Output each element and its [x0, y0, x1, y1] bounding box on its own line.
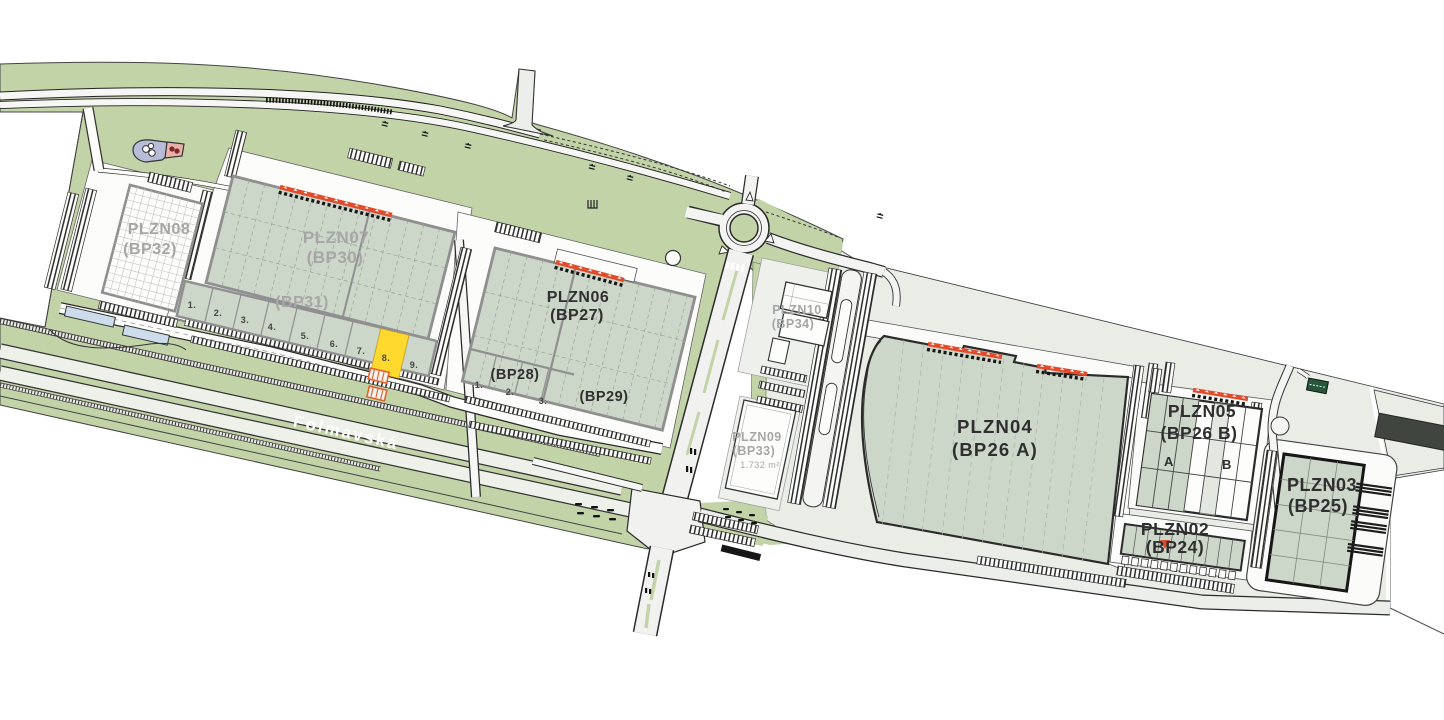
- svg-text:(BP24): (BP24): [1146, 537, 1204, 557]
- svg-text:PLZN05: PLZN05: [1168, 401, 1236, 421]
- svg-text:PLZN03: PLZN03: [1287, 475, 1357, 495]
- svg-text:A: A: [1164, 454, 1174, 469]
- svg-text:3.: 3.: [539, 396, 548, 406]
- svg-text:(BP29): (BP29): [580, 389, 629, 405]
- svg-text:PLZN06: PLZN06: [547, 289, 610, 306]
- svg-text:PLZN02: PLZN02: [1141, 519, 1209, 539]
- svg-text:PLZN07: PLZN07: [303, 228, 369, 247]
- svg-text:6.: 6.: [330, 339, 339, 349]
- svg-text:9.: 9.: [410, 360, 419, 370]
- svg-text:1.: 1.: [188, 300, 197, 310]
- svg-text:B: B: [1222, 457, 1232, 472]
- svg-text:(BP34): (BP34): [772, 317, 815, 331]
- svg-text:PLZN04: PLZN04: [957, 416, 1033, 437]
- svg-text:1.: 1.: [475, 380, 484, 390]
- svg-text:4.: 4.: [268, 322, 277, 332]
- svg-text:1.732 m²: 1.732 m²: [740, 460, 780, 470]
- svg-text:(BP28): (BP28): [491, 367, 540, 383]
- svg-text:(BP27): (BP27): [550, 307, 604, 324]
- svg-text:5.: 5.: [301, 331, 310, 341]
- svg-text:(BP25): (BP25): [1288, 496, 1348, 516]
- svg-text:(BP30): (BP30): [307, 248, 364, 267]
- svg-text:7.: 7.: [357, 346, 366, 356]
- svg-text:PLZN09: PLZN09: [732, 430, 782, 444]
- svg-text:(BP26 A): (BP26 A): [952, 439, 1038, 460]
- svg-text:2.: 2.: [214, 308, 223, 318]
- svg-text:(BP33): (BP33): [733, 444, 776, 458]
- svg-text:3.: 3.: [241, 315, 250, 325]
- svg-text:(BP32): (BP32): [123, 241, 177, 258]
- svg-text:2.: 2.: [506, 387, 515, 397]
- svg-text:PLZN08: PLZN08: [128, 221, 191, 238]
- svg-text:(BP26 B): (BP26 B): [1161, 423, 1238, 443]
- svg-text:8.: 8.: [382, 353, 391, 363]
- svg-text:PLZN10: PLZN10: [772, 303, 822, 317]
- svg-text:(BP31): (BP31): [275, 294, 329, 311]
